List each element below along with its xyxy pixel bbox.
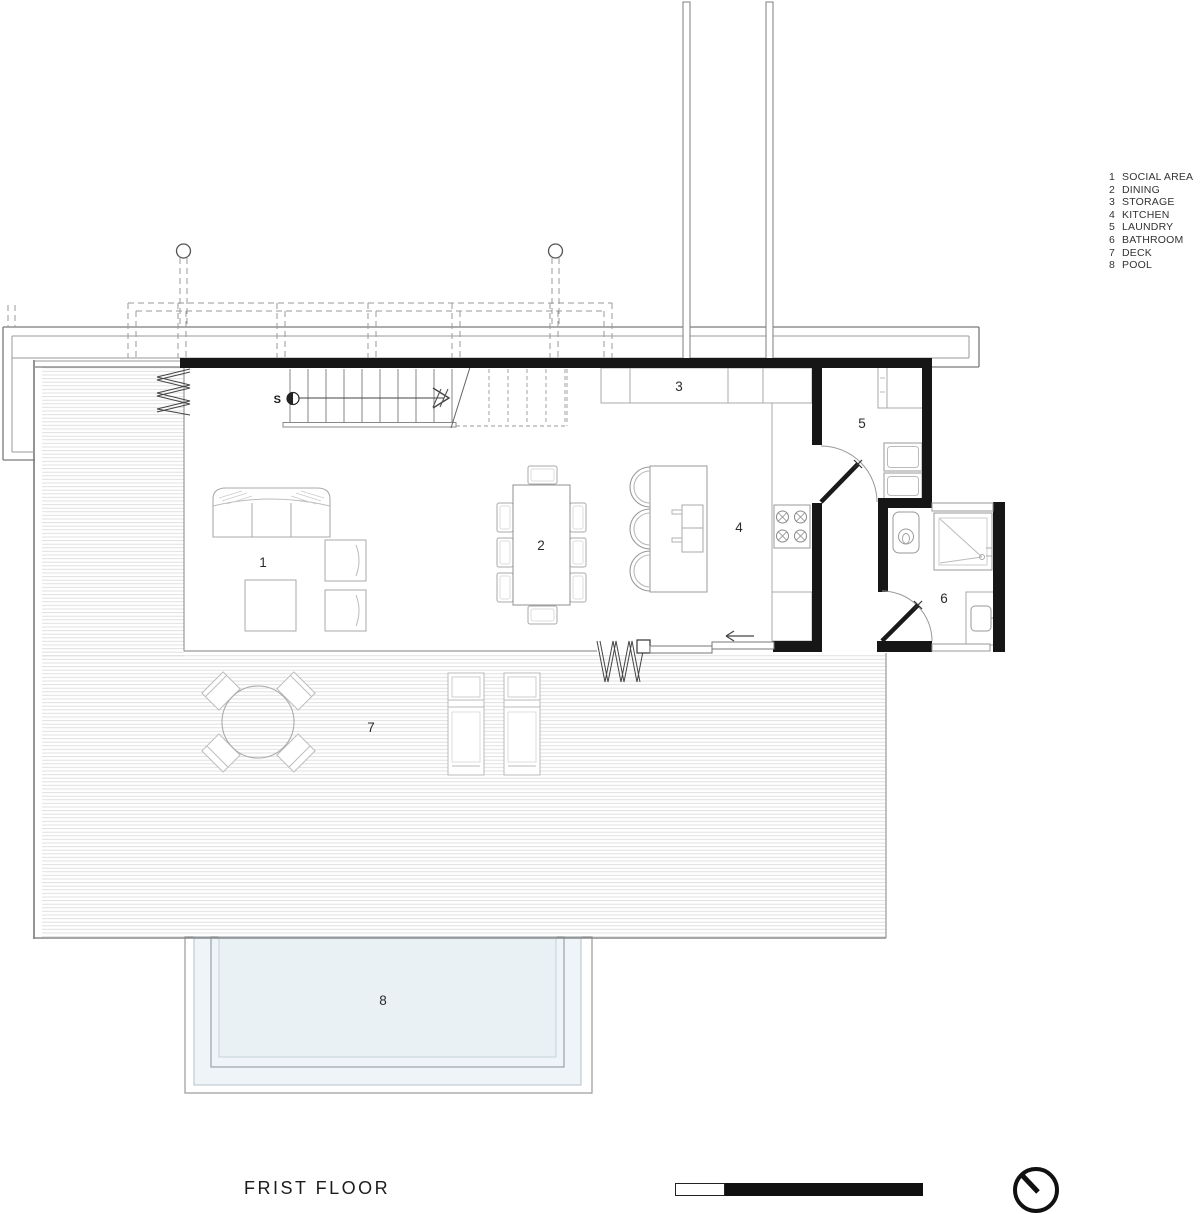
legend-item: 5LAUNDRY <box>1104 221 1193 234</box>
room-label-social-area: 1 <box>259 555 267 570</box>
legend-item-label: SOCIAL AREA <box>1122 171 1193 184</box>
pool <box>185 937 592 1093</box>
dryer <box>884 473 922 499</box>
legend-item-number: 3 <box>1104 196 1115 209</box>
room-label-laundry: 5 <box>858 416 866 431</box>
legend-item: 2DINING <box>1104 184 1193 197</box>
sofa <box>213 488 330 537</box>
legend-item-number: 5 <box>1104 221 1115 234</box>
column-markers <box>177 244 563 258</box>
legend-item-label: BATHROOM <box>1122 234 1184 247</box>
door-post <box>637 640 650 653</box>
chimney-walls <box>683 2 773 360</box>
laundry-cabinet <box>878 367 923 408</box>
washer <box>884 443 922 471</box>
room-label-bathroom: 6 <box>940 591 948 606</box>
legend-item: 6BATHROOM <box>1104 234 1193 247</box>
storage-cabinets <box>601 368 812 403</box>
legend-item-number: 6 <box>1104 234 1115 247</box>
stair-label: S <box>274 394 281 406</box>
room-label-deck: 7 <box>367 720 375 735</box>
legend-item-label: LAUNDRY <box>1122 221 1173 234</box>
toilet <box>893 512 919 553</box>
page-title: FRIST FLOOR <box>244 1178 390 1199</box>
legend-item-label: STORAGE <box>1122 196 1175 209</box>
legend-item: 4KITCHEN <box>1104 209 1193 222</box>
bathroom-sink <box>966 592 995 645</box>
legend-item-label: DECK <box>1122 247 1152 260</box>
legend-item: 7DECK <box>1104 247 1193 260</box>
room-label-dining: 2 <box>537 538 545 553</box>
legend-item-number: 2 <box>1104 184 1115 197</box>
scale-bar-open-segment <box>675 1183 725 1196</box>
room-label-storage: 3 <box>675 379 683 394</box>
room-label-kitchen: 4 <box>735 520 743 535</box>
legend-item-number: 8 <box>1104 259 1115 272</box>
scale-bar <box>675 1183 923 1196</box>
legend: 1SOCIAL AREA 2DINING 3STORAGE 4KITCHEN 5… <box>1104 171 1193 272</box>
legend-item-label: DINING <box>1122 184 1160 197</box>
shower <box>934 513 992 570</box>
legend-item-number: 4 <box>1104 209 1115 222</box>
room-label-pool: 8 <box>379 993 387 1008</box>
legend-item-label: KITCHEN <box>1122 209 1170 222</box>
ottoman <box>245 580 296 631</box>
legend-item-label: POOL <box>1122 259 1152 272</box>
scale-bar-solid-segment <box>725 1183 923 1196</box>
legend-item: 8POOL <box>1104 259 1193 272</box>
legend-item-number: 1 <box>1104 171 1115 184</box>
floor-plan-drawing: 1 2 3 4 5 6 7 8 S <box>0 0 1200 1214</box>
floor-plan-sheet: 1 2 3 4 5 6 7 8 S 1SOCIAL AREA 2DINING 3… <box>0 0 1200 1214</box>
legend-item-number: 7 <box>1104 247 1115 260</box>
legend-item: 3STORAGE <box>1104 196 1193 209</box>
roof-overhang-dashed <box>8 258 612 358</box>
north-indicator-icon <box>1015 1169 1057 1211</box>
legend-item: 1SOCIAL AREA <box>1104 171 1193 184</box>
